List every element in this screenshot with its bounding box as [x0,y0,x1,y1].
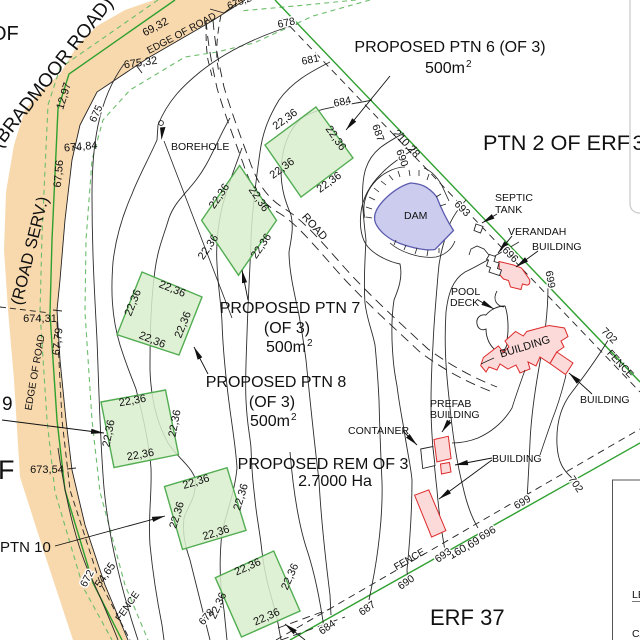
svg-text:BUILDING: BUILDING [532,241,582,253]
svg-text:DECK: DECK [450,297,479,309]
svg-text:2: 2 [466,59,472,70]
svg-text:ERF 37: ERF 37 [430,605,505,630]
svg-text:PROPOSED PTN 8: PROPOSED PTN 8 [206,374,347,391]
svg-text:CONTAINER: CONTAINER [348,425,409,437]
svg-text:PROPOSED REM OF 3: PROPOSED REM OF 3 [238,456,409,473]
svg-text:BOREHOLE: BOREHOLE [171,141,229,153]
svg-text:674,31: 674,31 [23,313,57,325]
svg-text:BUILDING: BUILDING [580,394,630,406]
svg-text:2: 2 [307,338,313,349]
svg-text:PTN 10: PTN 10 [0,539,51,556]
svg-text:67,56: 67,56 [52,160,66,188]
svg-text:OF: OF [0,23,19,45]
svg-text:CA: CA [632,628,640,640]
svg-text:500m: 500m [266,339,306,356]
svg-text:VERANDAH: VERANDAH [508,226,566,238]
svg-text:(OF 3): (OF 3) [264,320,310,337]
svg-text:LE: LE [632,589,640,601]
svg-text:3: 3 [633,130,640,155]
svg-text:F: F [0,455,15,485]
svg-text:PROPOSED PTN 7: PROPOSED PTN 7 [220,300,361,317]
svg-text:TANK: TANK [495,204,522,216]
svg-text:DAM: DAM [404,210,427,222]
svg-text:BUILDING: BUILDING [492,453,542,465]
svg-text:9: 9 [2,394,13,415]
svg-text:500m: 500m [250,413,290,430]
svg-text:2: 2 [291,412,297,423]
svg-text:PROPOSED PTN 6 (OF 3): PROPOSED PTN 6 (OF 3) [354,39,545,56]
svg-text:(OF 3): (OF 3) [249,394,295,411]
svg-text:500m: 500m [425,60,465,77]
svg-text:SEPTIC: SEPTIC [495,192,533,204]
svg-text:2.7000 Ha: 2.7000 Ha [298,473,372,490]
svg-text:673,54: 673,54 [30,464,64,476]
svg-text:PTN 2 OF ERF: PTN 2 OF ERF [483,130,630,155]
svg-text:BUILDING: BUILDING [430,409,480,421]
